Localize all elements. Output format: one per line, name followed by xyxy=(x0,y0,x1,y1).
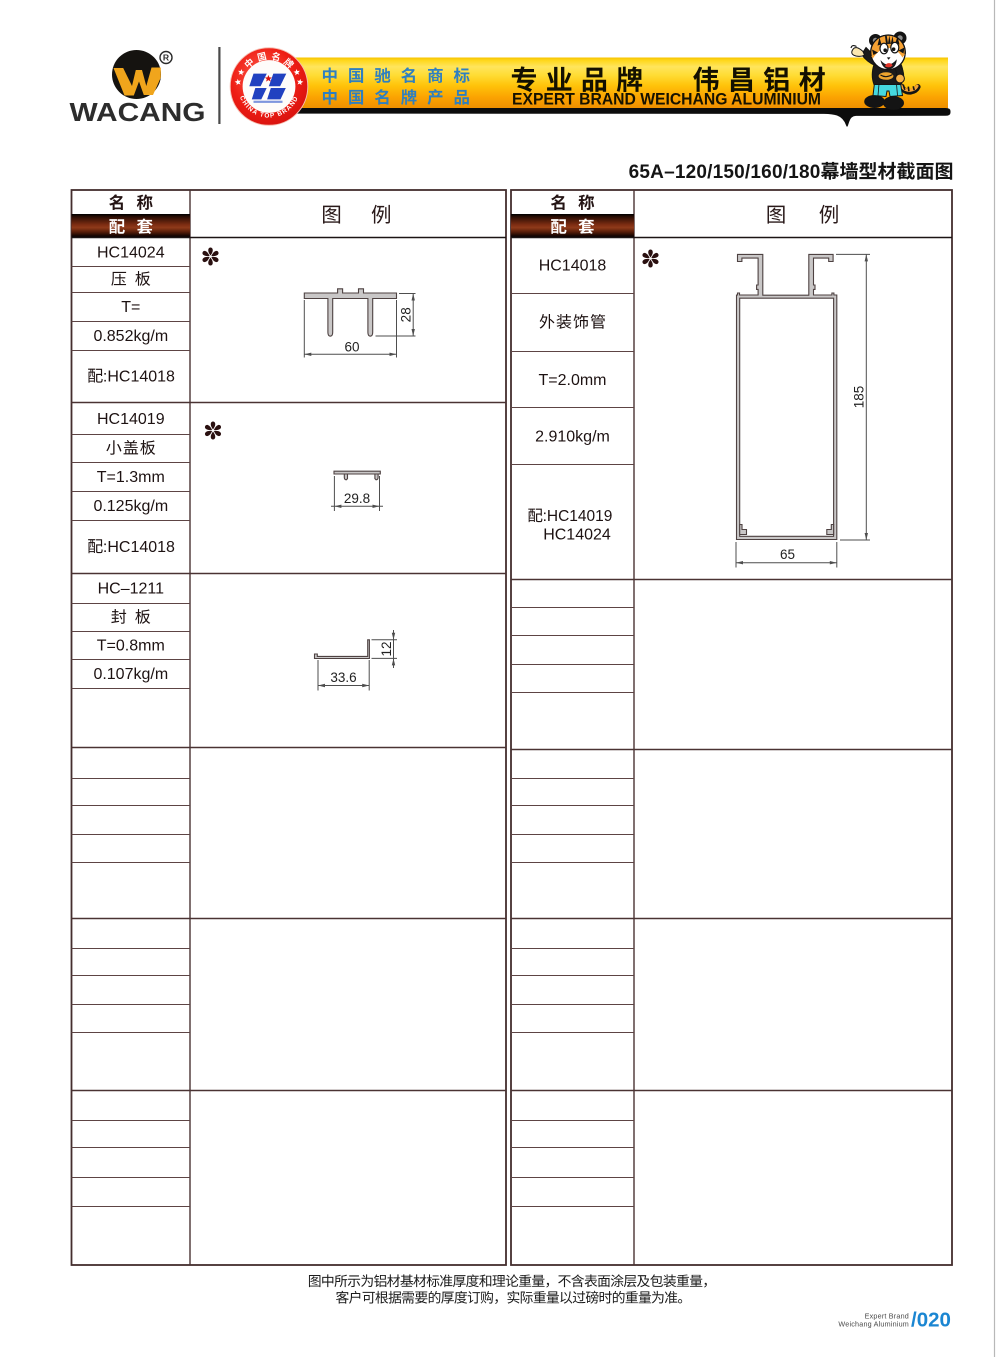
svg-text:185: 185 xyxy=(852,386,867,409)
svg-text:/020: /020 xyxy=(911,1309,951,1332)
svg-text::HC14018: :HC14018 xyxy=(103,539,175,556)
svg-text:HC14024: HC14024 xyxy=(97,245,165,262)
svg-text:R: R xyxy=(163,53,170,63)
svg-text:2.910kg/m: 2.910kg/m xyxy=(535,429,610,446)
svg-text:65A–120/150/160/180: 65A–120/150/160/180 xyxy=(629,162,821,183)
svg-text:HC–1211: HC–1211 xyxy=(98,581,165,598)
svg-text:12: 12 xyxy=(379,641,394,656)
svg-text:0.852kg/m: 0.852kg/m xyxy=(93,328,168,345)
svg-text::HC14019: :HC14019 xyxy=(543,508,613,525)
svg-text:T=2.0mm: T=2.0mm xyxy=(538,372,606,389)
svg-text:0.107kg/m: 0.107kg/m xyxy=(93,666,168,683)
svg-text:HC14018: HC14018 xyxy=(539,258,607,275)
svg-text::HC14018: :HC14018 xyxy=(103,369,175,386)
svg-text:T=1.3mm: T=1.3mm xyxy=(97,469,165,486)
svg-text:T=: T= xyxy=(121,299,140,316)
svg-text:HC14019: HC14019 xyxy=(97,411,165,428)
svg-text:28: 28 xyxy=(399,307,414,322)
svg-text:33.6: 33.6 xyxy=(330,670,356,685)
svg-text:60: 60 xyxy=(344,340,359,355)
svg-text:WACANG: WACANG xyxy=(70,97,206,127)
svg-text:0.125kg/m: 0.125kg/m xyxy=(93,498,168,515)
svg-text:65: 65 xyxy=(780,547,795,562)
svg-text:29.8: 29.8 xyxy=(344,491,370,506)
svg-text:Weichang Aluminium: Weichang Aluminium xyxy=(838,1320,909,1329)
svg-text:EXPERT BRAND WEICHANG ALUMINIU: EXPERT BRAND WEICHANG ALUMINIUM xyxy=(512,91,821,109)
svg-text:HC14024: HC14024 xyxy=(543,527,611,544)
svg-text:T=0.8mm: T=0.8mm xyxy=(97,638,165,655)
